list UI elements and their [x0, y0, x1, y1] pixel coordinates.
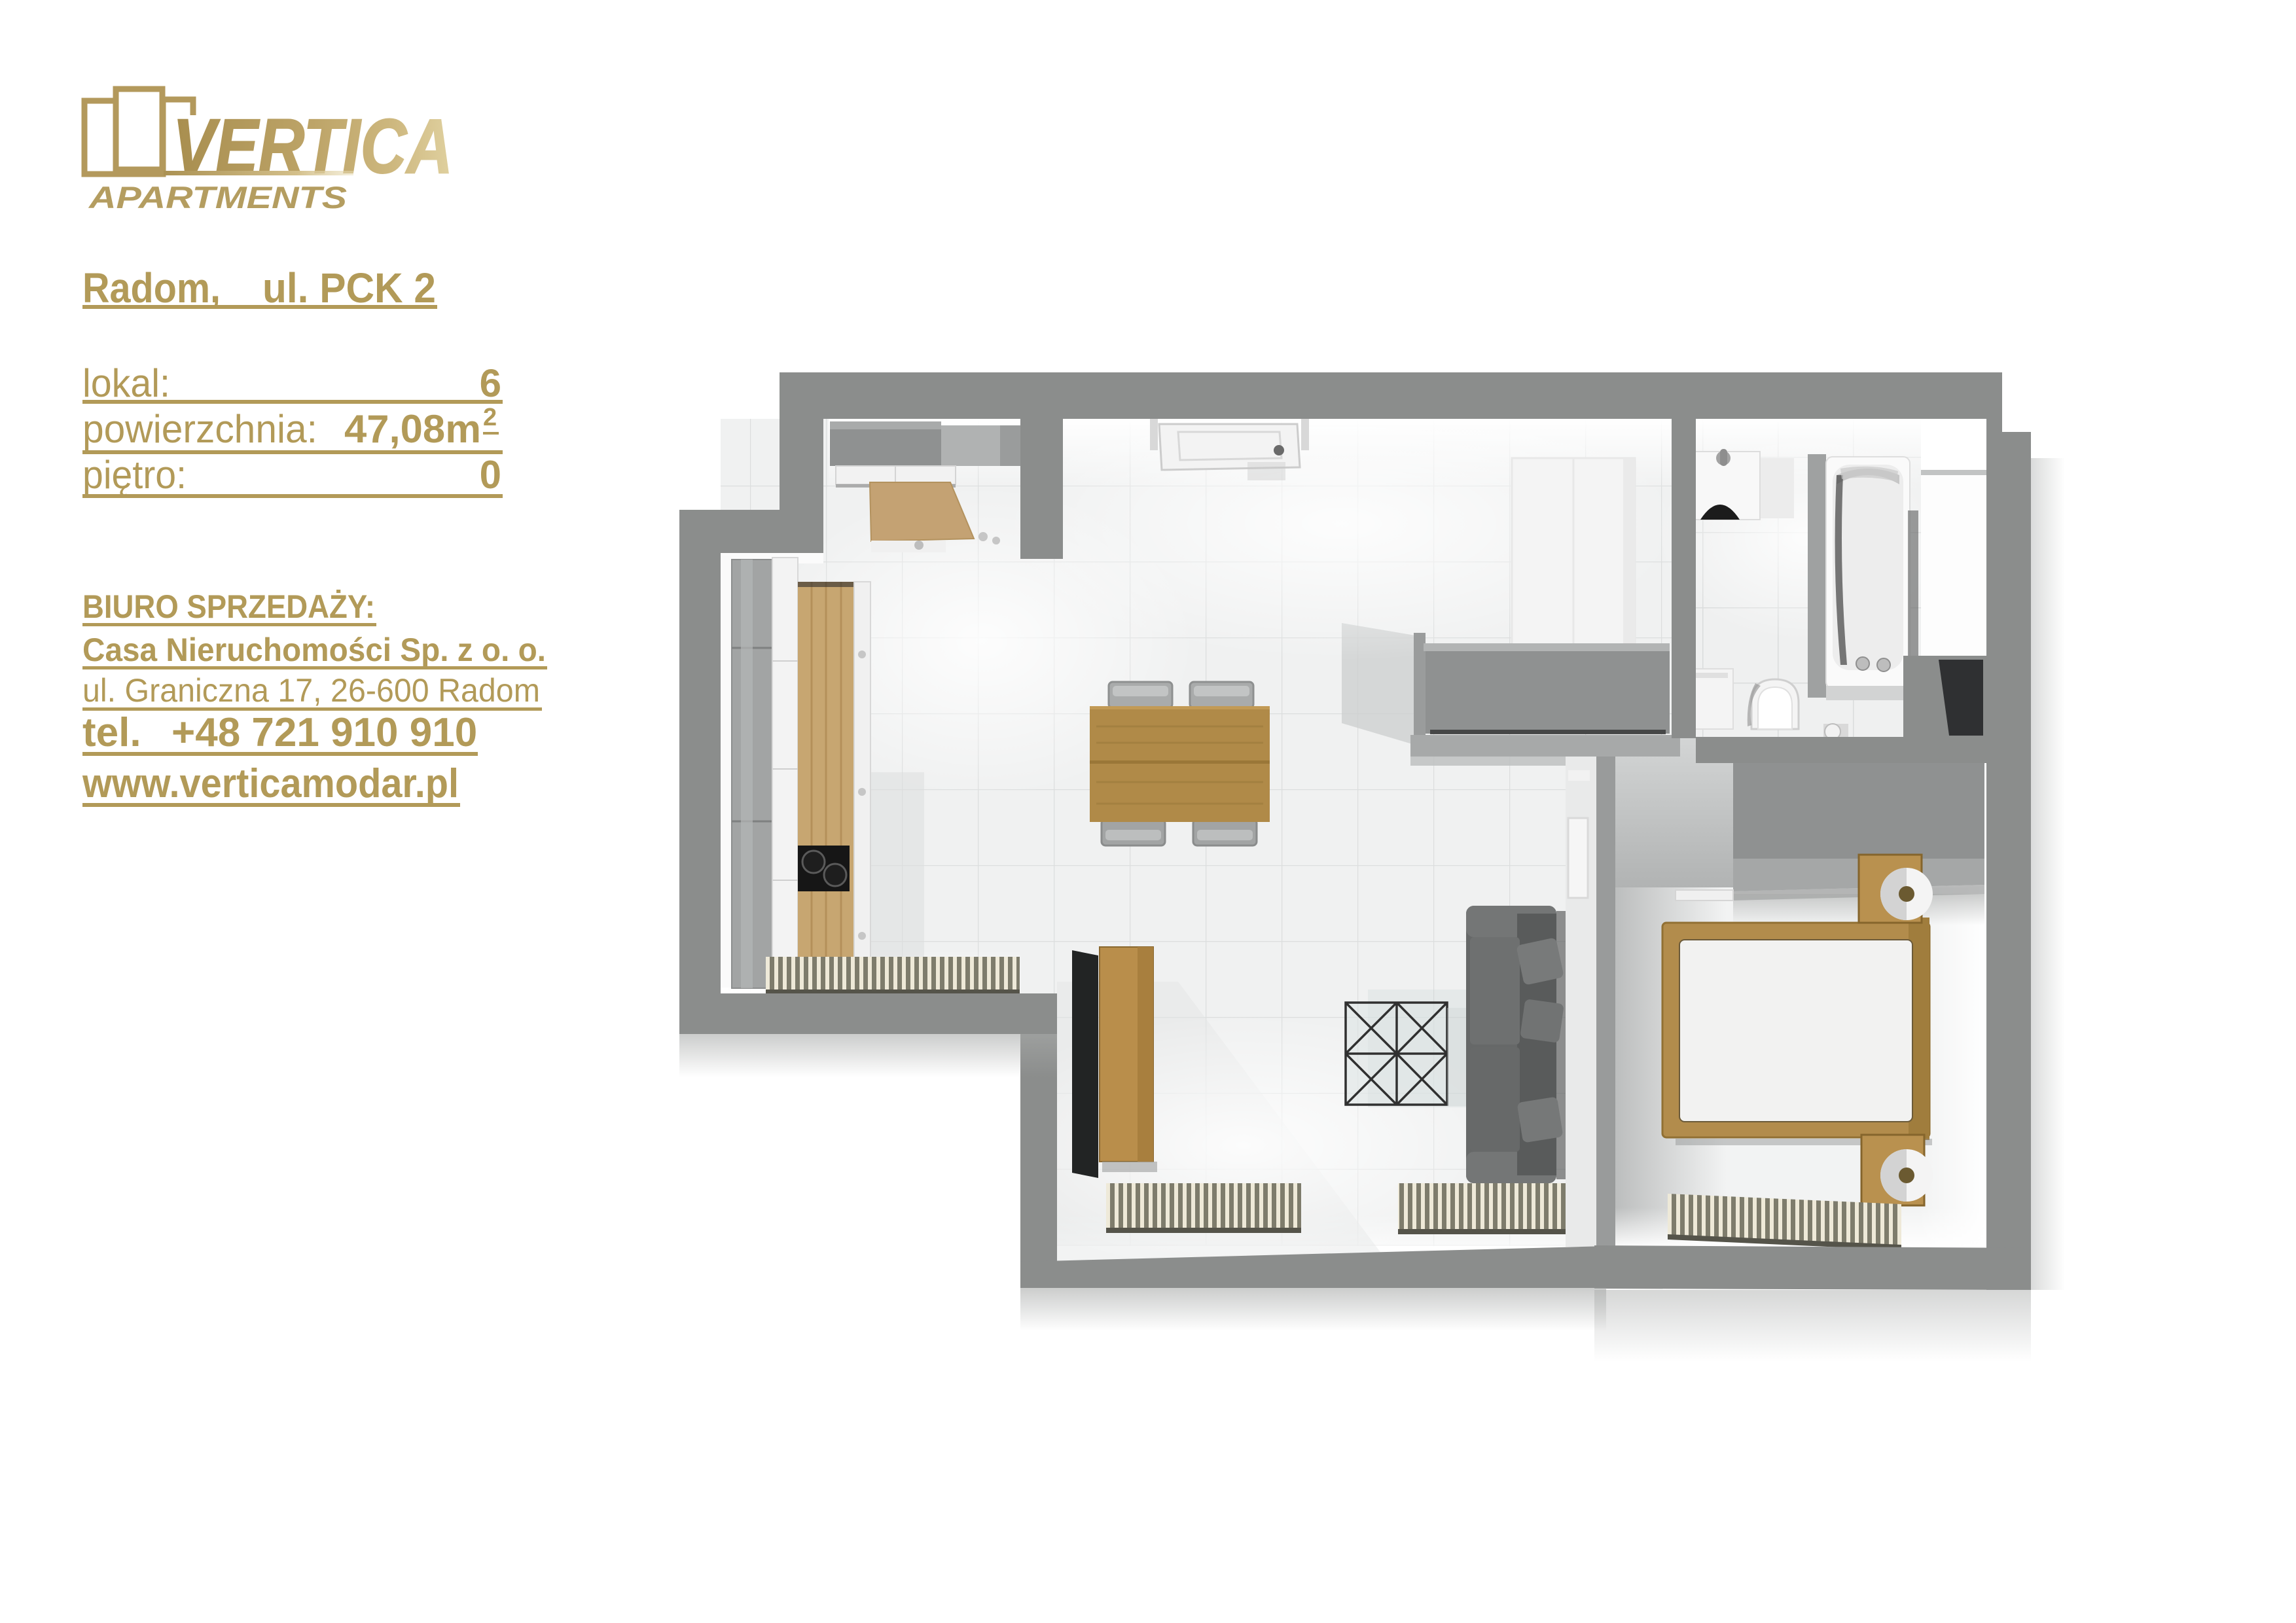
svg-text:Radom,: Radom,: [82, 264, 221, 312]
svg-text:lokal:: lokal:: [82, 361, 170, 405]
svg-text:2: 2: [483, 404, 497, 431]
svg-text:6: 6: [480, 361, 501, 405]
svg-text:VERTICA: VERTICA: [173, 103, 453, 190]
svg-text:+48 721 910 910: +48 721 910 910: [171, 710, 477, 755]
svg-text:powierzchnia:: powierzchnia:: [82, 407, 317, 451]
svg-text:ul. Graniczna 17, 26-600 Radom: ul. Graniczna 17, 26-600 Radom: [82, 672, 540, 709]
svg-text:BIURO SPRZEDAŻY:: BIURO SPRZEDAŻY:: [82, 588, 375, 625]
svg-text:tel.: tel.: [82, 710, 141, 755]
svg-text:0: 0: [480, 453, 501, 497]
svg-text:piętro:: piętro:: [82, 453, 187, 497]
svg-text:www.verticamodar.pl: www.verticamodar.pl: [82, 761, 459, 806]
svg-text:APARTMENTS: APARTMENTS: [88, 180, 347, 215]
svg-text:Casa Nieruchomości Sp. z o. o.: Casa Nieruchomości Sp. z o. o.: [82, 632, 546, 668]
svg-text:ul. PCK 2: ul. PCK 2: [262, 264, 436, 312]
svg-text:47,08m: 47,08m: [344, 407, 481, 451]
